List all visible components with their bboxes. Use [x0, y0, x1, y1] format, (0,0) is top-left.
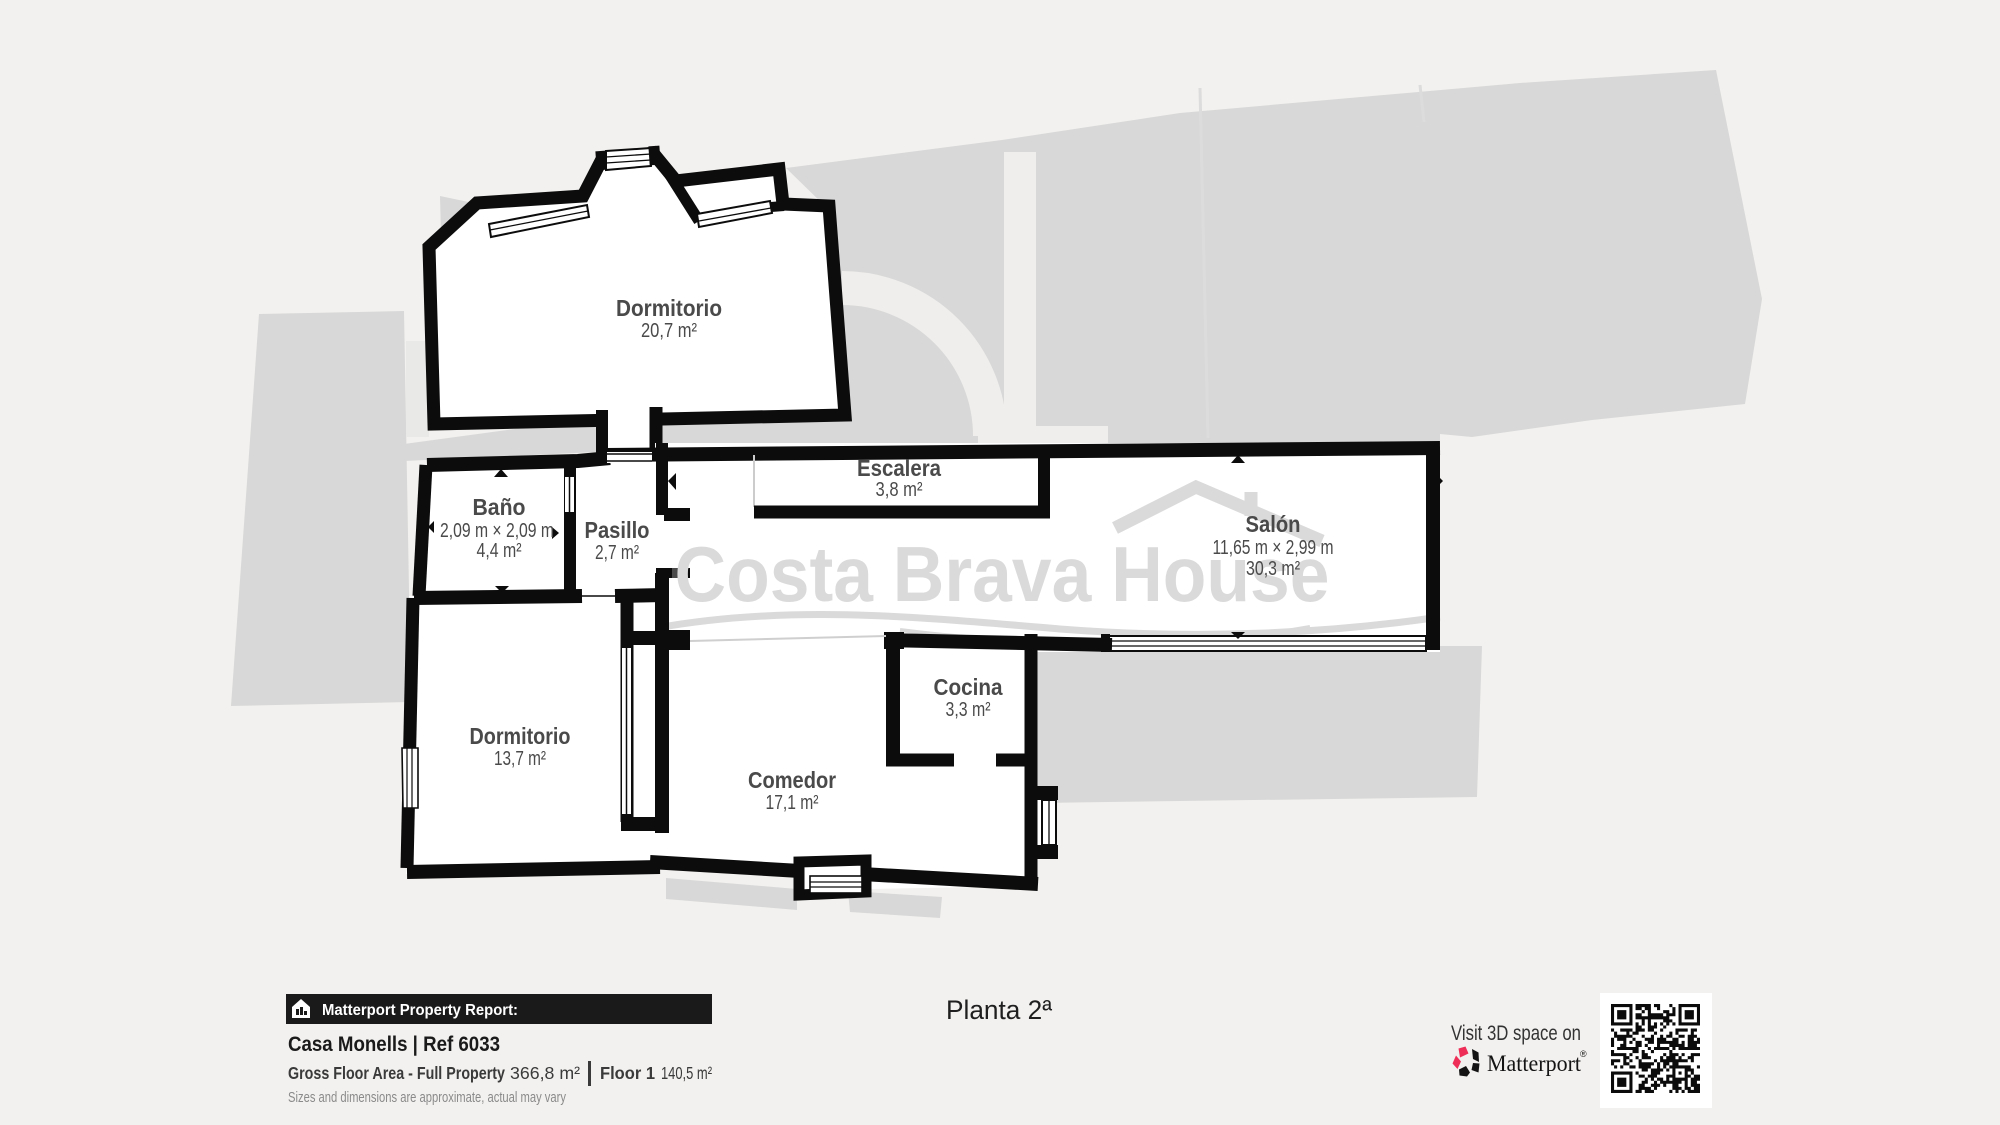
svg-text:3,8 m²: 3,8 m²: [876, 479, 923, 501]
svg-text:Planta 2ª: Planta 2ª: [946, 995, 1053, 1025]
svg-text:Visit 3D space on: Visit 3D space on: [1451, 1021, 1581, 1045]
svg-text:Floor 1: Floor 1: [600, 1063, 655, 1083]
svg-text:20,7 m²: 20,7 m²: [641, 320, 697, 342]
svg-text:Matterport: Matterport: [1487, 1051, 1582, 1076]
svg-text:17,1 m²: 17,1 m²: [766, 792, 819, 814]
svg-text:2,09 m × 2,09 m: 2,09 m × 2,09 m: [440, 520, 554, 542]
svg-text:30,3 m²: 30,3 m²: [1246, 558, 1300, 580]
svg-text:13,7 m²: 13,7 m²: [494, 748, 546, 770]
svg-text:Dormitorio: Dormitorio: [470, 723, 571, 749]
svg-text:3,3 m²: 3,3 m²: [946, 699, 991, 721]
svg-text:Salón: Salón: [1246, 511, 1301, 537]
svg-text:Comedor: Comedor: [748, 767, 836, 793]
svg-text:Casa Monells | Ref 6033: Casa Monells | Ref 6033: [288, 1033, 500, 1056]
svg-text:Gross Floor Area - Full Proper: Gross Floor Area - Full Property: [288, 1063, 505, 1083]
svg-text:Matterport Property Report:: Matterport Property Report:: [322, 1002, 518, 1019]
svg-text:Escalera: Escalera: [857, 455, 941, 481]
svg-text:366,8 m²: 366,8 m²: [510, 1063, 580, 1083]
svg-text:11,65 m × 2,99 m: 11,65 m × 2,99 m: [1213, 537, 1334, 559]
svg-text:Sizes and dimensions are appro: Sizes and dimensions are approximate, ac…: [288, 1090, 567, 1106]
svg-text:Baño: Baño: [473, 494, 526, 520]
svg-text:140,5 m²: 140,5 m²: [661, 1063, 712, 1083]
svg-text:Pasillo: Pasillo: [585, 517, 650, 543]
svg-text:4,4 m²: 4,4 m²: [477, 540, 522, 562]
svg-text:Dormitorio: Dormitorio: [616, 295, 722, 321]
svg-text:2,7 m²: 2,7 m²: [595, 542, 639, 564]
svg-text:®: ®: [1580, 1049, 1587, 1059]
svg-text:Cocina: Cocina: [934, 674, 1003, 700]
